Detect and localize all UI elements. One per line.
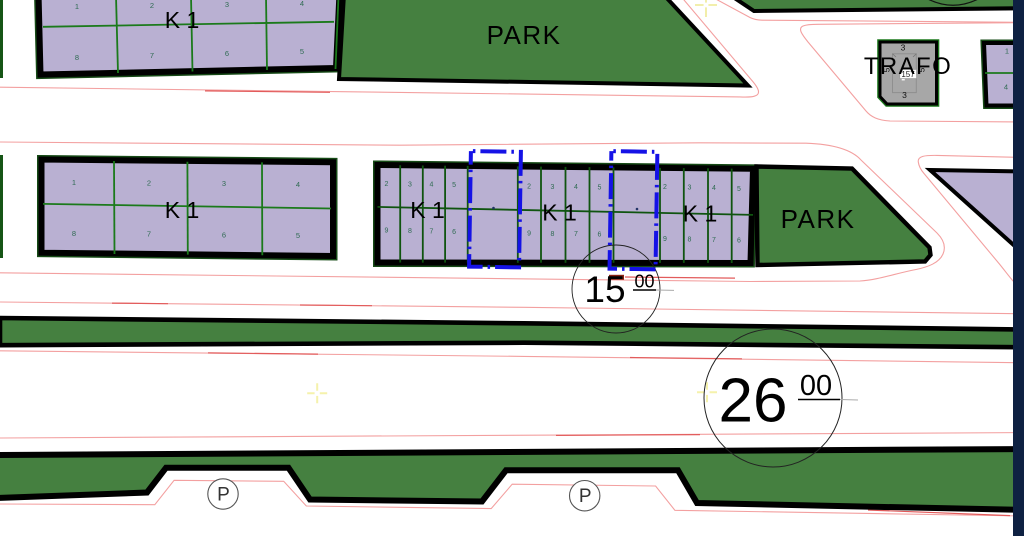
svg-text:TRAFO: TRAFO xyxy=(864,53,952,80)
svg-text:K 1: K 1 xyxy=(683,201,718,227)
svg-text:8: 8 xyxy=(75,53,79,62)
svg-text:2: 2 xyxy=(147,179,151,188)
svg-text:4: 4 xyxy=(296,180,300,189)
svg-text:00: 00 xyxy=(634,272,654,292)
svg-text:7: 7 xyxy=(712,237,716,244)
svg-text:5: 5 xyxy=(452,182,456,189)
svg-text:K 1: K 1 xyxy=(165,197,200,223)
svg-text:7: 7 xyxy=(150,51,154,60)
svg-text:5: 5 xyxy=(597,185,601,192)
svg-text:9: 9 xyxy=(385,228,389,235)
svg-text:5: 5 xyxy=(737,186,741,193)
svg-text:8: 8 xyxy=(72,229,76,238)
svg-text:8: 8 xyxy=(408,228,412,235)
svg-text:7: 7 xyxy=(574,231,578,238)
svg-text:6: 6 xyxy=(225,49,229,58)
svg-text:00: 00 xyxy=(800,370,832,402)
svg-text:5: 5 xyxy=(296,231,300,240)
svg-text:4: 4 xyxy=(1004,83,1008,92)
svg-text:K 1: K 1 xyxy=(542,200,577,226)
svg-text:PARK: PARK xyxy=(487,20,562,50)
svg-text:6: 6 xyxy=(737,238,741,245)
svg-text:4: 4 xyxy=(712,185,716,192)
svg-text:2: 2 xyxy=(527,183,531,190)
svg-text:9: 9 xyxy=(663,236,667,243)
svg-text:3: 3 xyxy=(408,181,412,188)
svg-text:7: 7 xyxy=(147,230,151,239)
svg-text:7: 7 xyxy=(429,228,433,235)
svg-text:2: 2 xyxy=(385,181,389,188)
svg-text:4: 4 xyxy=(429,182,433,189)
svg-text:K 1: K 1 xyxy=(410,197,445,223)
svg-text:1: 1 xyxy=(75,2,79,11)
svg-text:1: 1 xyxy=(1005,47,1009,56)
svg-text:8: 8 xyxy=(551,231,555,238)
svg-text:3: 3 xyxy=(688,185,692,192)
svg-text:2: 2 xyxy=(150,1,154,10)
svg-text:P: P xyxy=(579,486,592,507)
svg-text:6: 6 xyxy=(222,230,226,239)
svg-text:PARK: PARK xyxy=(781,204,856,234)
svg-text:26: 26 xyxy=(719,367,788,436)
svg-text:3: 3 xyxy=(902,90,907,100)
svg-text:4: 4 xyxy=(574,184,578,191)
svg-text:K 1: K 1 xyxy=(165,7,200,33)
svg-text:6: 6 xyxy=(452,229,456,236)
svg-text:3: 3 xyxy=(901,43,906,53)
svg-text:15: 15 xyxy=(584,269,625,310)
svg-text:P: P xyxy=(217,485,230,506)
svg-text:3: 3 xyxy=(222,179,226,188)
svg-text:1: 1 xyxy=(72,178,76,187)
svg-text:2: 2 xyxy=(663,184,667,191)
svg-text:8: 8 xyxy=(688,237,692,244)
svg-text:6: 6 xyxy=(597,232,601,239)
svg-text:9: 9 xyxy=(527,230,531,237)
svg-text:3: 3 xyxy=(551,184,555,191)
svg-text:4: 4 xyxy=(300,0,304,8)
svg-text:5: 5 xyxy=(300,47,304,56)
svg-text:3: 3 xyxy=(225,0,229,9)
